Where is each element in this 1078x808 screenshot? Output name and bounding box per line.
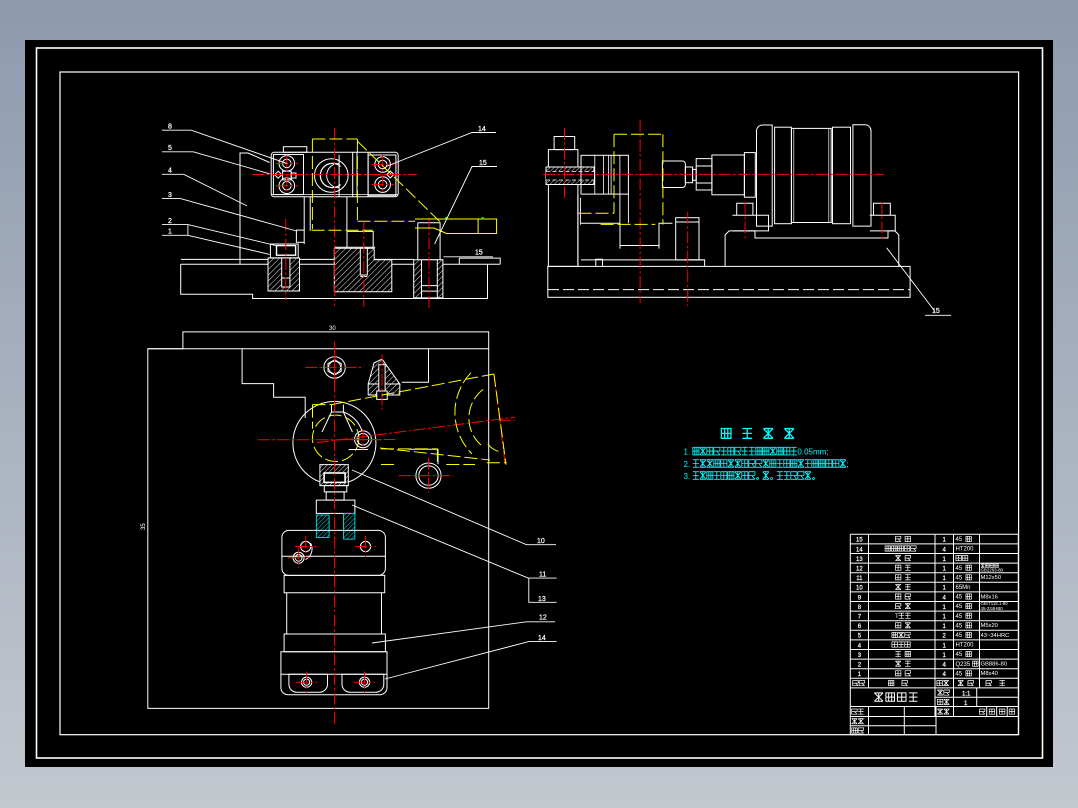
svg-text:2: 2 xyxy=(168,218,172,225)
svg-text:T: T xyxy=(895,614,899,620)
svg-text:1: 1 xyxy=(168,229,172,236)
svg-text:30: 30 xyxy=(329,326,336,332)
svg-text:14: 14 xyxy=(538,635,546,642)
svg-text:45: 45 xyxy=(956,652,963,658)
svg-text:M8x40: M8x40 xyxy=(981,671,998,677)
svg-text:8: 8 xyxy=(168,124,172,131)
svg-text:45: 45 xyxy=(956,575,963,581)
svg-text:GB2263-80: GB2263-80 xyxy=(981,568,1004,573)
svg-text:15: 15 xyxy=(479,160,487,167)
svg-text:15: 15 xyxy=(856,538,863,544)
svg-text:2.: 2. xyxy=(684,460,691,469)
svg-text:M8x16: M8x16 xyxy=(981,594,998,600)
svg-text:43~34HRC: 43~34HRC xyxy=(981,633,1010,639)
svg-text:45: 45 xyxy=(956,671,963,677)
svg-text:12: 12 xyxy=(856,567,863,573)
svg-text:M12x50: M12x50 xyxy=(981,575,1002,581)
svg-text:45: 45 xyxy=(956,623,963,629)
svg-text:65Mn: 65Mn xyxy=(956,585,971,591)
svg-text:13: 13 xyxy=(538,596,546,603)
svg-text:15: 15 xyxy=(932,308,940,315)
svg-text:12: 12 xyxy=(539,615,547,622)
svg-text:4: 4 xyxy=(168,168,172,175)
svg-text:HT200: HT200 xyxy=(956,547,975,553)
svg-text:45: 45 xyxy=(956,633,963,639)
svg-text:45: 45 xyxy=(956,604,963,610)
svg-text:HT200: HT200 xyxy=(956,643,975,649)
svg-text:0.05mm;: 0.05mm; xyxy=(797,447,828,456)
svg-text:10: 10 xyxy=(537,538,545,545)
svg-text:11: 11 xyxy=(856,576,863,582)
svg-text:15: 15 xyxy=(475,250,483,257)
svg-text:45-234HB0: 45-234HB0 xyxy=(981,606,1004,611)
svg-text:11: 11 xyxy=(539,572,546,579)
svg-text:M5x20: M5x20 xyxy=(981,623,998,629)
svg-text:45: 45 xyxy=(956,595,963,601)
svg-text:13: 13 xyxy=(856,557,863,563)
svg-text:35: 35 xyxy=(141,523,147,530)
svg-text:Q235: Q235 xyxy=(956,662,971,668)
svg-text:;: ; xyxy=(846,460,848,469)
svg-text:1:1: 1:1 xyxy=(962,692,971,698)
svg-text:5: 5 xyxy=(168,145,172,152)
svg-text:1.: 1. xyxy=(684,447,691,456)
svg-text:45: 45 xyxy=(956,537,963,543)
svg-text:14: 14 xyxy=(478,126,486,133)
svg-text:10: 10 xyxy=(856,586,863,592)
svg-text:45: 45 xyxy=(956,566,963,572)
svg-text:14: 14 xyxy=(856,547,863,553)
svg-text:3.: 3. xyxy=(684,472,691,481)
svg-text:3: 3 xyxy=(168,192,172,199)
svg-text:45: 45 xyxy=(956,614,963,620)
svg-text:GB886-80: GB886-80 xyxy=(981,662,1007,668)
